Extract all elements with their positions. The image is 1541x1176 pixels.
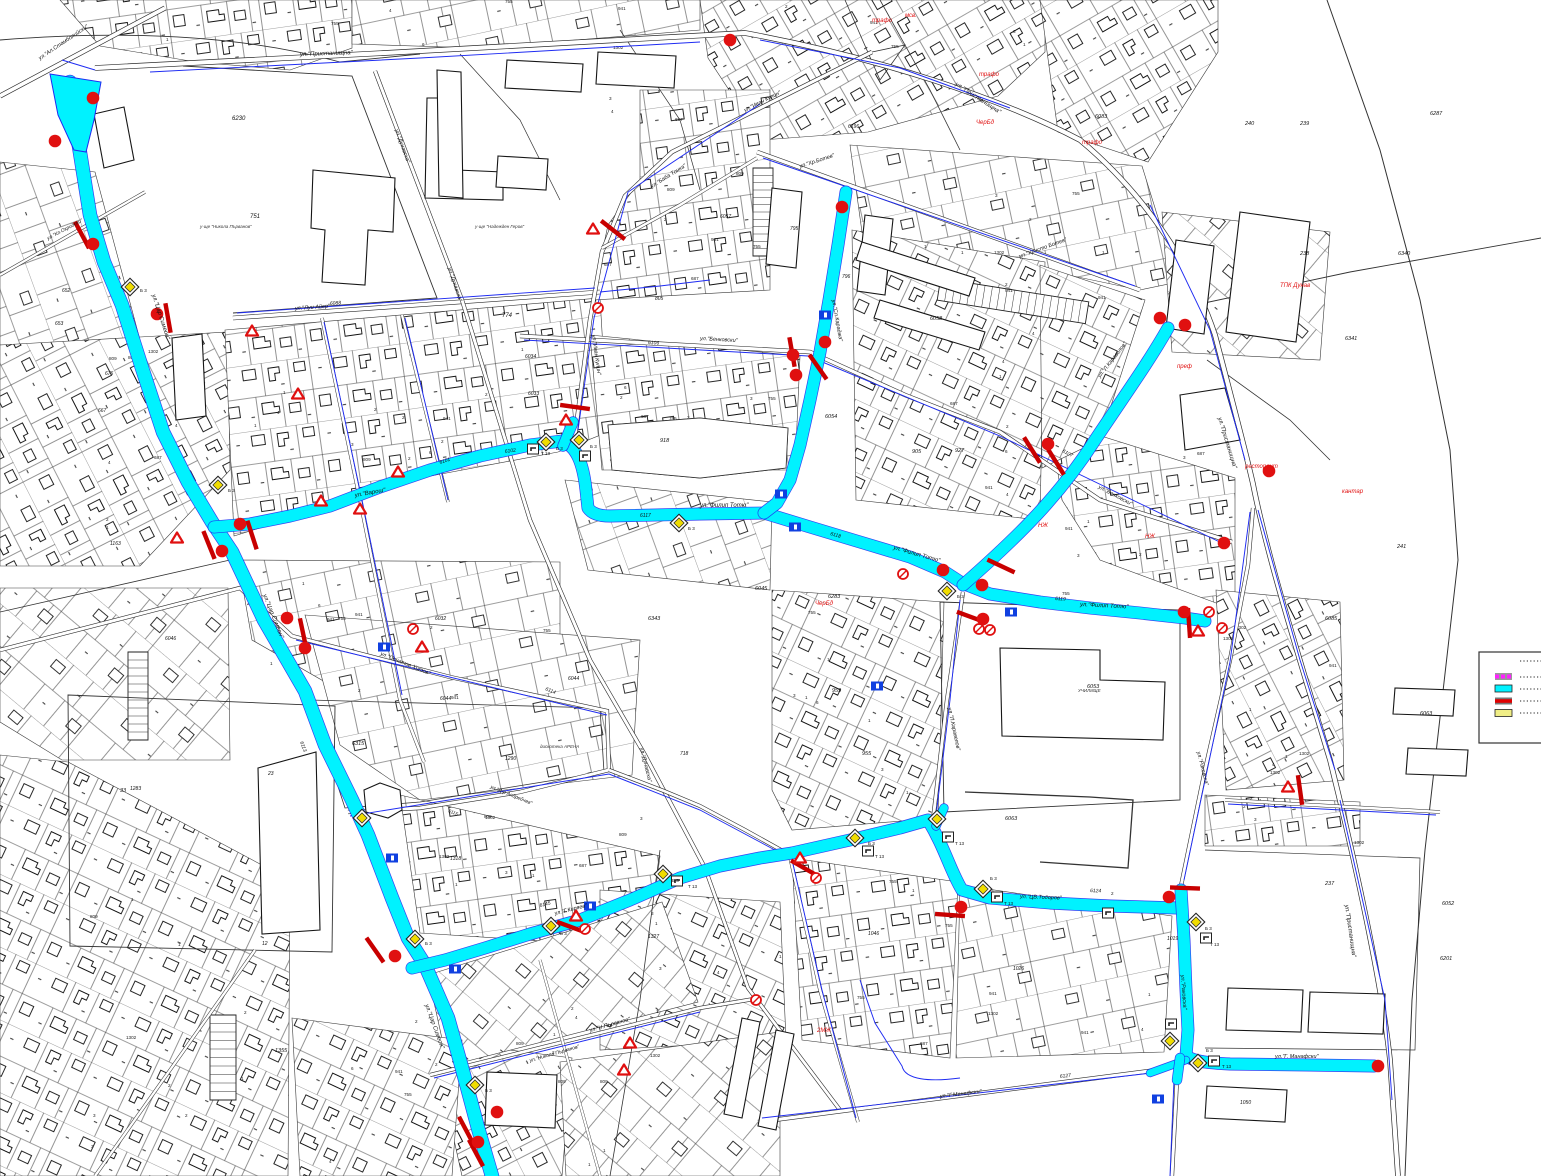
svg-text:2: 2 <box>185 1113 188 1118</box>
svg-text:3: 3 <box>505 870 508 875</box>
svg-text:809: 809 <box>600 1079 608 1084</box>
svg-text:774: 774 <box>502 313 513 319</box>
svg-text:Т 13: Т 13 <box>875 854 885 859</box>
svg-text:755: 755 <box>857 995 865 1000</box>
svg-text:809: 809 <box>558 1079 566 1084</box>
svg-text:1026: 1026 <box>1013 966 1024 972</box>
svg-text:687: 687 <box>641 414 649 419</box>
svg-text:3: 3 <box>351 442 354 447</box>
svg-text:1: 1 <box>283 390 286 395</box>
svg-text:238: 238 <box>1299 251 1310 257</box>
svg-text:941: 941 <box>451 695 459 700</box>
svg-text:12: 12 <box>262 941 268 947</box>
svg-text:4: 4 <box>1141 1027 1144 1032</box>
svg-text:4: 4 <box>575 1015 578 1020</box>
svg-text:ТПК Дунав: ТПК Дунав <box>1280 283 1310 289</box>
svg-text:дискотека АРЕНА: дискотека АРЕНА <box>540 744 579 749</box>
svg-text:1302: 1302 <box>613 45 624 50</box>
svg-text:33: 33 <box>120 788 127 794</box>
svg-text:мсв.: мсв. <box>905 13 917 19</box>
svg-text:6088: 6088 <box>330 300 342 307</box>
svg-text:809: 809 <box>90 914 98 919</box>
svg-text:6044: 6044 <box>568 676 579 682</box>
svg-text:1: 1 <box>553 1032 556 1037</box>
svg-text:2: 2 <box>408 456 411 461</box>
svg-text:Б 3: Б 3 <box>140 288 147 293</box>
svg-text:1302: 1302 <box>988 1011 999 1016</box>
svg-text:1302: 1302 <box>1354 840 1365 845</box>
svg-text:трафо: трафо <box>872 18 893 24</box>
svg-text:6119: 6119 <box>1055 596 1066 603</box>
svg-text:6057: 6057 <box>720 214 731 220</box>
svg-text:Б 3: Б 3 <box>1206 1048 1213 1053</box>
svg-text:755: 755 <box>331 21 339 26</box>
svg-text:1: 1 <box>912 888 915 893</box>
svg-text:1: 1 <box>1023 42 1026 47</box>
svg-text:905: 905 <box>912 449 922 455</box>
svg-text:927: 927 <box>955 448 965 454</box>
svg-text:1: 1 <box>1102 250 1105 255</box>
svg-text:3: 3 <box>1254 817 1257 822</box>
svg-text:Б 3: Б 3 <box>228 488 235 493</box>
svg-text:4: 4 <box>1002 359 1005 364</box>
svg-text:2: 2 <box>441 439 444 444</box>
svg-text:1: 1 <box>588 1162 591 1167</box>
svg-text:ресторант: ресторант <box>1244 464 1278 470</box>
svg-text:2: 2 <box>1029 217 1032 222</box>
svg-text:Т 13: Т 13 <box>1222 1064 1232 1069</box>
svg-text:1163: 1163 <box>110 541 121 547</box>
svg-text:6: 6 <box>1005 449 1008 454</box>
svg-text:805: 805 <box>655 296 664 302</box>
svg-text:2: 2 <box>374 407 377 412</box>
svg-text:2: 2 <box>620 395 623 400</box>
svg-text:6: 6 <box>816 700 819 705</box>
svg-text:кантар: кантар <box>1342 489 1364 495</box>
svg-text:6033: 6033 <box>528 391 539 397</box>
svg-text:809: 809 <box>109 356 117 361</box>
svg-text:240: 240 <box>1244 121 1255 127</box>
svg-text:1302: 1302 <box>994 250 1005 255</box>
svg-text:687: 687 <box>950 401 958 406</box>
svg-text:ЧерБд: ЧерБд <box>815 601 834 607</box>
svg-text:трафо: трафо <box>979 72 1000 78</box>
svg-text:755: 755 <box>808 610 816 615</box>
svg-text:ЧерБд: ЧерБд <box>976 120 995 126</box>
svg-text:1: 1 <box>603 1148 606 1153</box>
svg-text:6315: 6315 <box>352 741 365 747</box>
svg-text:3: 3 <box>640 816 643 821</box>
svg-text:755: 755 <box>1072 191 1080 196</box>
svg-text:6054: 6054 <box>825 414 837 420</box>
svg-text:1302: 1302 <box>1299 751 1310 756</box>
svg-text:918: 918 <box>660 438 670 444</box>
svg-text:4: 4 <box>1272 762 1275 767</box>
svg-text:у-ще "Никола Първанов": у-ще "Никола Първанов" <box>199 224 252 229</box>
svg-text:6196: 6196 <box>848 124 859 130</box>
svg-text:Б 3: Б 3 <box>672 878 679 883</box>
svg-text:НЖ: НЖ <box>1038 523 1048 529</box>
svg-text:1: 1 <box>656 1009 659 1014</box>
svg-text:1302: 1302 <box>485 815 496 820</box>
svg-text:6287: 6287 <box>1430 111 1443 117</box>
svg-text:у-ще "Надежден Геров": у-ще "Надежден Геров" <box>474 224 525 229</box>
svg-text:941: 941 <box>355 612 363 617</box>
svg-text:1: 1 <box>906 790 909 795</box>
svg-text:6: 6 <box>422 42 425 47</box>
svg-text:941: 941 <box>985 485 993 490</box>
svg-text:941: 941 <box>443 416 451 421</box>
svg-text:241: 241 <box>1396 544 1406 550</box>
svg-text:1: 1 <box>999 374 1002 379</box>
svg-text:2: 2 <box>415 1019 418 1024</box>
svg-text:687: 687 <box>920 1041 928 1046</box>
svg-text:1: 1 <box>270 661 273 666</box>
svg-text:941: 941 <box>618 6 626 11</box>
svg-text:687: 687 <box>675 117 683 122</box>
svg-text:1: 1 <box>779 954 782 959</box>
svg-text:1: 1 <box>302 581 305 586</box>
svg-text:1046: 1046 <box>868 931 879 937</box>
svg-text:941: 941 <box>989 991 997 996</box>
svg-text:1: 1 <box>827 657 830 662</box>
svg-text:6058: 6058 <box>930 316 943 322</box>
svg-text:трафо: трафо <box>1082 140 1103 146</box>
svg-text:6: 6 <box>1013 29 1016 34</box>
svg-text:941: 941 <box>327 617 335 622</box>
svg-text:4: 4 <box>1032 331 1035 336</box>
svg-text:Б 3: Б 3 <box>868 841 875 846</box>
svg-text:3: 3 <box>1077 553 1080 558</box>
svg-text:преф: преф <box>1177 364 1192 370</box>
svg-text:1050: 1050 <box>1240 1100 1251 1106</box>
svg-text:687: 687 <box>579 863 587 868</box>
svg-text:2: 2 <box>168 1083 171 1088</box>
svg-text:4: 4 <box>1006 492 1009 497</box>
svg-text:751: 751 <box>250 214 260 220</box>
svg-text:3: 3 <box>93 1113 96 1118</box>
svg-text:1: 1 <box>166 37 169 42</box>
svg-text:1: 1 <box>1249 707 1252 712</box>
svg-text:687: 687 <box>691 276 699 281</box>
svg-text:Б 3: Б 3 <box>590 444 597 449</box>
svg-text:Б 3: Б 3 <box>688 526 695 531</box>
svg-text:1: 1 <box>805 695 808 700</box>
svg-text:3: 3 <box>793 693 796 698</box>
svg-text:755: 755 <box>338 616 346 621</box>
svg-text:ул."Г. Манафски": ул."Г. Манафски" <box>1274 1054 1320 1060</box>
svg-text:6117: 6117 <box>640 513 651 519</box>
svg-text:2МЖ: 2МЖ <box>816 1028 831 1034</box>
svg-text:Т 13: Т 13 <box>541 451 551 456</box>
svg-text:Б 3: Б 3 <box>485 1088 492 1093</box>
svg-text:2: 2 <box>1005 282 1008 287</box>
svg-text:6044: 6044 <box>440 696 451 702</box>
svg-text:1302: 1302 <box>439 854 450 859</box>
svg-text:6046: 6046 <box>165 636 176 642</box>
svg-text:3: 3 <box>995 193 998 198</box>
svg-text:2: 2 <box>1111 891 1114 896</box>
svg-text:1: 1 <box>1285 754 1288 759</box>
svg-text:6083: 6083 <box>1095 114 1108 120</box>
svg-text:6034: 6034 <box>525 354 536 360</box>
svg-text:3: 3 <box>91 1144 94 1149</box>
svg-text:Б 3: Б 3 <box>425 941 432 946</box>
svg-text:6106: 6106 <box>648 340 660 347</box>
svg-text:796: 796 <box>842 274 851 280</box>
svg-text:ул."Филип Тотю": ул."Филип Тотю" <box>699 503 749 509</box>
svg-text:1: 1 <box>1148 992 1151 997</box>
svg-text:2: 2 <box>1139 552 1142 557</box>
svg-text:2: 2 <box>430 625 433 630</box>
svg-text:3: 3 <box>1183 455 1186 460</box>
svg-text:6032: 6032 <box>435 616 446 622</box>
svg-text:2: 2 <box>358 688 361 693</box>
svg-text:1327: 1327 <box>648 934 659 940</box>
svg-text:2: 2 <box>106 517 109 522</box>
svg-text:755: 755 <box>1062 591 1070 596</box>
svg-text:676: 676 <box>105 371 114 377</box>
svg-text:2: 2 <box>244 1010 247 1015</box>
svg-text:1: 1 <box>961 250 964 255</box>
svg-text:1302: 1302 <box>126 1035 137 1040</box>
svg-text:6: 6 <box>351 1066 354 1071</box>
svg-text:23: 23 <box>267 771 274 777</box>
svg-text:809: 809 <box>619 832 627 837</box>
svg-text:Б 3: Б 3 <box>560 931 567 936</box>
svg-text:1302: 1302 <box>650 1053 661 1058</box>
svg-text:687: 687 <box>154 455 162 460</box>
svg-text:755: 755 <box>889 879 897 884</box>
svg-text:1355: 1355 <box>275 1048 288 1054</box>
svg-text:4: 4 <box>329 1159 332 1164</box>
svg-text:1: 1 <box>532 873 535 878</box>
svg-text:755: 755 <box>768 396 776 401</box>
svg-text:6053: 6053 <box>1087 684 1100 690</box>
svg-text:1318: 1318 <box>450 856 461 862</box>
svg-text:1302: 1302 <box>1270 770 1281 775</box>
svg-text:4: 4 <box>389 8 392 13</box>
svg-text:Т 13: Т 13 <box>1210 942 1220 947</box>
svg-text:237: 237 <box>1324 881 1335 887</box>
svg-text:2: 2 <box>435 1062 438 1067</box>
svg-text:3: 3 <box>881 767 884 772</box>
svg-text:6085: 6085 <box>1325 616 1338 622</box>
svg-text:2: 2 <box>664 217 667 222</box>
svg-text:955: 955 <box>862 751 872 757</box>
svg-text:4: 4 <box>277 410 280 415</box>
svg-text:1: 1 <box>924 244 927 249</box>
svg-text:2: 2 <box>785 4 788 9</box>
svg-text:959: 959 <box>832 688 841 694</box>
svg-text:6201: 6201 <box>1440 956 1452 962</box>
svg-text:1: 1 <box>131 897 134 902</box>
svg-text:718: 718 <box>680 751 689 757</box>
svg-text:809: 809 <box>363 457 371 462</box>
svg-text:1019: 1019 <box>1167 936 1178 942</box>
svg-text:941: 941 <box>1005 288 1013 293</box>
svg-text:941: 941 <box>1329 663 1337 668</box>
svg-text:809: 809 <box>516 1041 524 1046</box>
svg-text:4: 4 <box>108 460 111 465</box>
svg-text:6283: 6283 <box>828 594 841 600</box>
svg-text:6343: 6343 <box>648 616 661 622</box>
svg-text:687: 687 <box>1197 451 1205 456</box>
svg-text:1: 1 <box>868 718 871 723</box>
svg-text:НЖ: НЖ <box>1145 534 1155 540</box>
svg-text:Б 3: Б 3 <box>1205 926 1212 931</box>
svg-text:6340: 6340 <box>1398 251 1411 257</box>
svg-text:1: 1 <box>1087 519 1090 524</box>
svg-text:941: 941 <box>1065 526 1073 531</box>
svg-text:1: 1 <box>455 882 458 887</box>
svg-text:2: 2 <box>1006 424 1009 429</box>
svg-text:3: 3 <box>750 396 753 401</box>
svg-text:653: 653 <box>55 321 64 327</box>
svg-text:Т 13: Т 13 <box>1004 901 1014 906</box>
svg-text:3: 3 <box>609 96 612 101</box>
svg-text:6052: 6052 <box>1442 901 1454 907</box>
svg-text:Б 3: Б 3 <box>957 594 964 599</box>
svg-text:1302: 1302 <box>148 349 159 354</box>
svg-text:809: 809 <box>667 187 675 192</box>
svg-text:755: 755 <box>505 0 513 4</box>
svg-text:6063: 6063 <box>1420 711 1433 717</box>
svg-text:1290: 1290 <box>505 756 516 762</box>
svg-text:941: 941 <box>1098 295 1106 300</box>
svg-text:4: 4 <box>717 970 720 975</box>
svg-text:239: 239 <box>1299 121 1309 127</box>
svg-text:Б 3: Б 3 <box>556 446 563 451</box>
svg-text:755: 755 <box>945 923 953 928</box>
svg-text:941: 941 <box>711 237 719 242</box>
svg-text:2: 2 <box>485 392 488 397</box>
svg-text:6230: 6230 <box>232 116 246 122</box>
svg-text:755: 755 <box>753 244 761 249</box>
svg-text:6: 6 <box>429 450 432 455</box>
svg-text:941: 941 <box>395 1069 403 1074</box>
svg-text:1283: 1283 <box>130 786 141 792</box>
svg-text:6: 6 <box>318 603 321 608</box>
svg-text:652: 652 <box>62 288 71 294</box>
svg-text:755: 755 <box>404 1092 412 1097</box>
svg-text:755: 755 <box>543 628 551 633</box>
svg-text:1: 1 <box>178 942 181 947</box>
svg-text:6341: 6341 <box>1345 336 1357 342</box>
svg-text:1: 1 <box>521 347 524 352</box>
svg-text:2: 2 <box>571 1006 574 1011</box>
svg-text:795: 795 <box>790 226 799 232</box>
svg-text:1: 1 <box>241 1076 244 1081</box>
svg-text:Т 13: Т 13 <box>955 841 965 846</box>
svg-text:1: 1 <box>106 525 109 530</box>
svg-text:6: 6 <box>624 385 627 390</box>
svg-text:6063: 6063 <box>1005 816 1018 822</box>
svg-text:Т 13: Т 13 <box>688 884 698 889</box>
svg-text:1: 1 <box>655 921 658 926</box>
svg-text:3: 3 <box>659 966 662 971</box>
svg-text:Б 3: Б 3 <box>990 876 997 881</box>
svg-text:667: 667 <box>98 408 107 414</box>
svg-text:2: 2 <box>402 415 405 420</box>
svg-text:941: 941 <box>1081 1030 1089 1035</box>
svg-text:4: 4 <box>611 109 614 114</box>
svg-text:6045: 6045 <box>755 586 768 592</box>
svg-text:1: 1 <box>254 423 257 428</box>
svg-text:6124: 6124 <box>1090 888 1102 894</box>
svg-text:4: 4 <box>175 423 178 428</box>
